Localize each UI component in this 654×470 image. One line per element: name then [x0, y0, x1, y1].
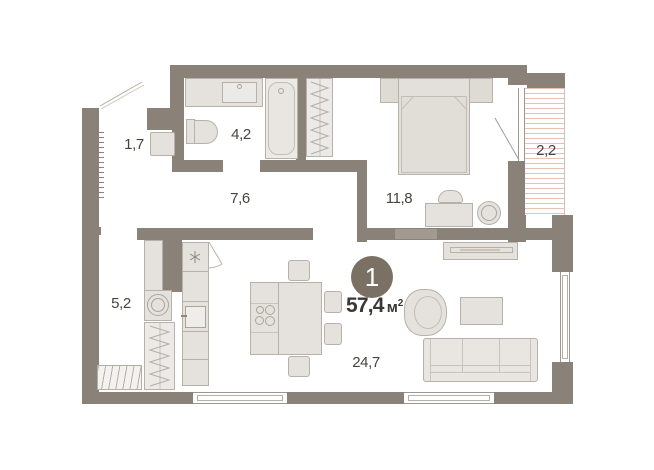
- total-area-label: 57,4м2: [346, 294, 403, 318]
- faucet-icon: [237, 84, 242, 89]
- wall-left-nub: [95, 227, 101, 235]
- washer-drum-icon: [151, 298, 165, 312]
- sofa-armrest-line: [530, 339, 531, 381]
- chair: [324, 323, 342, 345]
- burner-icon: [256, 306, 264, 314]
- sofa-divider: [499, 339, 500, 372]
- snowflake-icon: [183, 243, 208, 271]
- chair: [324, 291, 342, 313]
- room-area-label-bedroom: 11,8: [377, 190, 421, 208]
- wall-bottom-a: [82, 392, 193, 404]
- shoe-rack: [97, 365, 142, 390]
- total-area-unit-sup: 2: [398, 298, 404, 309]
- wall-corner-bottom-right: [552, 362, 573, 404]
- total-area-unit: м: [387, 299, 398, 316]
- wall-bottom-c: [494, 392, 552, 404]
- kitchen-cabinet: [182, 271, 209, 302]
- window-kitchen-pane: [197, 395, 283, 401]
- armchair-seat: [414, 296, 442, 329]
- radiator-ticks: [99, 132, 104, 198]
- storage-shelf: [144, 240, 163, 291]
- bedroom-door: [395, 229, 437, 239]
- fridge: [182, 242, 209, 272]
- desk-chair: [438, 190, 463, 203]
- wall-kitchen-top-a: [137, 228, 313, 240]
- wall-balcony-top: [527, 73, 565, 88]
- room-area-label-balcony: 2,2: [524, 142, 568, 160]
- hanger-zigzag-icon: [307, 79, 332, 156]
- kitchen-cabinet: [182, 359, 209, 386]
- wall-right-upper-block: [552, 215, 573, 272]
- burner-icon: [265, 305, 275, 315]
- wall-left-exterior: [82, 108, 99, 404]
- desk: [425, 203, 473, 227]
- wardrobe-bedroom: [306, 78, 333, 157]
- floor-plan: 1,7 4,2 7,6 11,8 2,2 5,2 24,7 1 57,4м2: [0, 0, 654, 470]
- wall-top-notch: [508, 78, 527, 85]
- wall-bedroom-balcony: [508, 161, 526, 242]
- wall-top-main: [172, 65, 527, 78]
- wall-entry-vertical: [170, 65, 184, 108]
- wall-bathroom-bottom-right: [260, 160, 367, 172]
- room-area-label-storage: 5,2: [99, 295, 143, 313]
- room-area-label-living-kitchen: 24,7: [344, 354, 388, 372]
- wardrobe-storage: [144, 322, 175, 390]
- wall-bottom-b: [287, 392, 404, 404]
- sofa-armrest-line: [430, 339, 431, 381]
- fridge-door-swing: [209, 242, 222, 268]
- balcony-door-swing: [495, 118, 519, 160]
- kitchen-cabinet: [182, 331, 209, 360]
- bathtub-drain: [278, 88, 284, 94]
- sofa-line: [431, 365, 530, 366]
- wall-storage-column: [160, 240, 182, 292]
- total-area-value: 57,4: [346, 294, 384, 317]
- tv-console-line: [460, 249, 500, 251]
- room-area-label-entry-niche: 1,7: [112, 136, 156, 154]
- room-area-label-hallway: 7,6: [218, 190, 262, 208]
- chair: [288, 356, 310, 377]
- burner-icon: [265, 316, 275, 326]
- counter-divider: [251, 303, 278, 304]
- bed-blanket: [401, 96, 467, 173]
- window-right-pane: [562, 275, 568, 359]
- stool-inner: [481, 205, 497, 221]
- burner-icon: [255, 316, 264, 325]
- dining-table: [278, 282, 322, 355]
- hanger-zigzag-icon: [145, 323, 174, 389]
- window-living-pane: [408, 395, 490, 401]
- wall-bathroom-bottom-left: [172, 160, 223, 172]
- unit-badge: 1: [351, 256, 393, 298]
- sofa-line: [431, 372, 530, 373]
- chair: [288, 260, 310, 281]
- entry-door-swing: [100, 82, 142, 106]
- kitchen-faucet-icon: [181, 315, 187, 317]
- kitchen-sink: [185, 306, 206, 328]
- room-area-label-bathroom: 4,2: [219, 126, 263, 144]
- sofa-divider: [462, 339, 463, 372]
- coffee-table: [460, 297, 503, 325]
- sofa: [423, 338, 538, 382]
- toilet-bowl: [194, 120, 218, 144]
- counter-divider: [251, 332, 278, 333]
